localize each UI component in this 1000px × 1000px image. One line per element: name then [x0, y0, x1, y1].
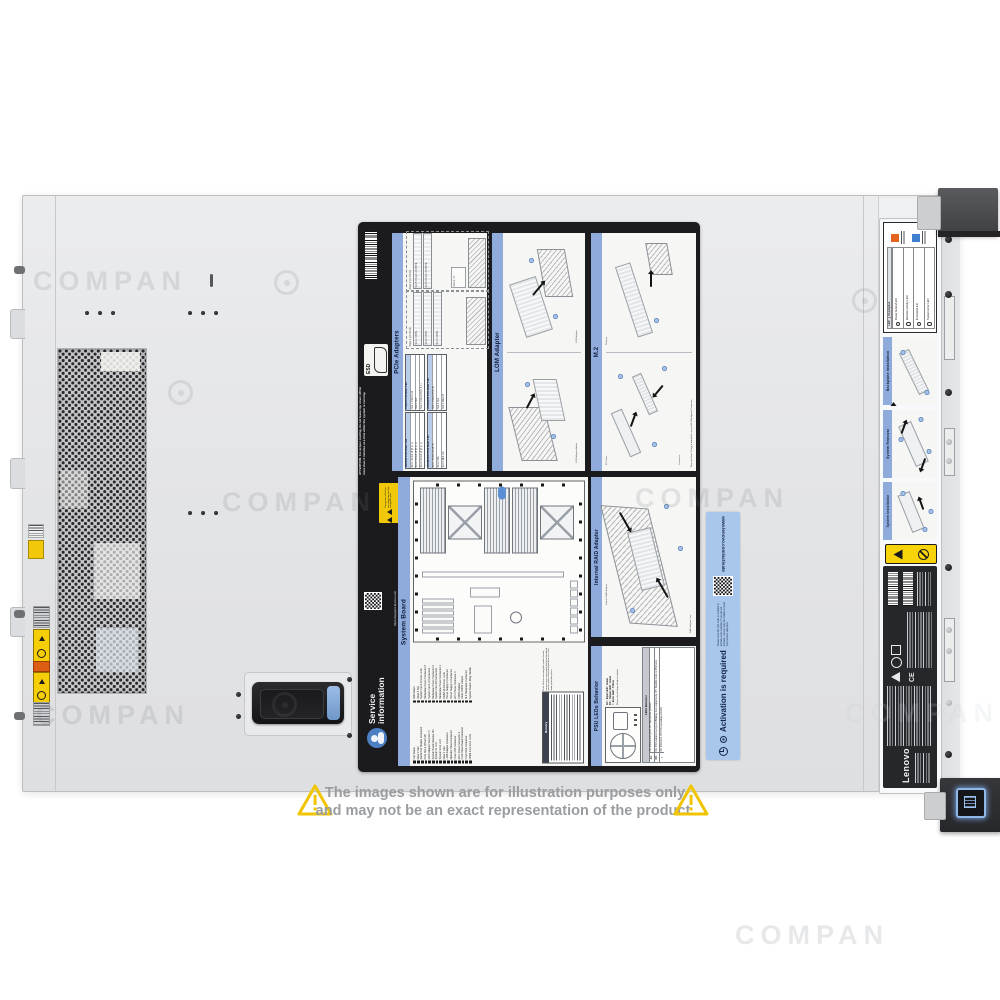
board-callout-marker [579, 538, 582, 541]
m2-drive-label: M.2 Drive [606, 456, 609, 465]
rail-screw [945, 564, 952, 571]
blue-sticker [498, 486, 506, 499]
rail-hole [946, 700, 952, 706]
list-item: Fan Status [413, 706, 416, 764]
front-led-row: Power button/LED [892, 248, 902, 328]
list-item: DIMM 13-24 Error LEDs [443, 645, 446, 703]
lom-adapter-label: LOM Adapter [576, 330, 579, 343]
rack-ear-top [938, 188, 998, 234]
rail-hole [946, 627, 952, 633]
m2-diagram-backplane: Retainer [604, 237, 682, 349]
rear-label-small-yellow-1 [28, 540, 44, 559]
support-qr-code [364, 592, 382, 610]
latch-blue-touchpoint [327, 686, 340, 720]
rivet-group-1 [85, 311, 115, 315]
legend-column-2: NMI ButtonRiser 3 SlotSystem Fan 1-6 Err… [413, 645, 539, 703]
latch-inner-recess [260, 689, 324, 719]
warning-triangle-right-icon [672, 783, 710, 817]
attention-note: ATTENTION: For proper cooling, do not le… [359, 383, 391, 475]
m2-title: M.2 [594, 347, 600, 358]
m2-diagram-install: M.2 Drive Connector [604, 355, 682, 467]
psu-led-dots [634, 714, 637, 726]
backplane-title-strip: Backplane Installation [883, 337, 892, 405]
pcie-title-strip: PCIe Adapters [392, 233, 403, 471]
raid-tray-label: RAID Adapter Tray [690, 615, 693, 633]
board-callout-marker [562, 483, 565, 486]
service-info-title: Service information [360, 648, 394, 748]
rear-label-yellow-2 [33, 672, 50, 706]
lom-airduct-label: LOM Adapter Airduct [576, 443, 579, 463]
list-item: Clear CMOS Jumper [461, 645, 464, 703]
rail-slot-2 [944, 428, 955, 476]
lom-diagram-adapter: LOM Adapter [507, 237, 581, 349]
backplane-section [892, 337, 937, 405]
board-callout-marker [415, 574, 418, 577]
cpu2-socket [540, 505, 574, 539]
activation-qr-code [713, 576, 733, 596]
rail-screw [945, 291, 952, 298]
psu-legend-items: AC : Input LED : GreenDC : Output LED : … [606, 648, 615, 705]
board-callout-marker [415, 556, 418, 559]
board-callout-marker [579, 574, 582, 577]
rivet-group-3 [188, 511, 218, 515]
system-installation-section [892, 482, 937, 540]
front-rail [939, 200, 960, 787]
psu-title: PSU LEDs Behavior [594, 681, 600, 732]
board-callout-marker [520, 483, 523, 486]
list-item: GPU Power Connector 1 [454, 645, 457, 703]
list-item: System Fan 4-6 Connectors [435, 645, 438, 703]
rear-tab-2 [10, 458, 25, 489]
cover-latch-handle [252, 682, 344, 724]
board-callout-marker [541, 483, 544, 486]
list-item: Slot 2: FH/HL [423, 293, 432, 347]
pcie-riser-table: x8/x8/x8 PCIe Riser 1 kitSlot 1: PCIe3 x… [405, 412, 425, 469]
rear-edge-seam [55, 196, 56, 791]
led-col-header: LED [888, 317, 891, 328]
riser2-label: Riser 2 (of CPU2) [409, 234, 412, 290]
riser1-diagram: Riser 1 (of CPU1) Slot 1: FH/HLSlot 2: F… [406, 290, 489, 349]
hazard-circle-icon [37, 691, 46, 700]
front-led-card: LED Description Power button/LEDNetwork … [883, 222, 937, 333]
front-led-row: System Error LED [924, 248, 934, 328]
support-url-block: https://support.lenovo.com [383, 578, 395, 626]
list-item: PCIe Slot 4 (PCIe3 x8) [424, 706, 427, 764]
board-callout-marker [478, 637, 481, 640]
board-callout-marker [520, 637, 523, 640]
service-info-line2: information [377, 677, 386, 724]
memory-table: Memory [542, 691, 584, 763]
cmos-battery [510, 611, 522, 623]
rear-tab-1 [10, 309, 25, 339]
board-callout-marker [579, 628, 582, 631]
list-item: Riser 3 Slot [417, 645, 420, 703]
hazard-circle-icon [37, 649, 46, 658]
system-removal-section [892, 410, 937, 478]
list-item: System Board Lifting Handle [469, 645, 472, 703]
board-callout-marker [415, 502, 418, 505]
rear-label-gray-2 [33, 702, 50, 726]
board-callout-marker [579, 520, 582, 523]
activation-url: www.lenovo.com/activate [721, 516, 726, 572]
esd-text: ESD [366, 364, 372, 374]
list-item: CMOS Battery [458, 645, 461, 703]
list-item: Riser 2 Slot [417, 706, 420, 764]
system-installation-title-strip: System Installation [883, 482, 892, 540]
warning-triangle-icon [387, 517, 392, 523]
cert-circle-icon [891, 657, 902, 668]
psu-fan-icon [610, 733, 636, 759]
list-item: RAID Adapter Slot (Slot 7) [428, 706, 431, 764]
system-removal-title-strip: System Removal [883, 410, 892, 478]
psu-title-strip: PSU LEDs Behavior [591, 646, 602, 766]
vent-slot-hole [210, 274, 213, 287]
power-button-glyph [964, 796, 976, 808]
front-seam-1 [863, 196, 864, 791]
board-callout-marker [478, 483, 481, 486]
lom-title-strip: LOM Adapter [492, 233, 503, 471]
raid-title: Internal RAID Adapter [594, 529, 600, 585]
board-callout-marker [457, 483, 460, 486]
memory-note: Note: Before removing the system board, … [543, 645, 554, 690]
watermark-text: COMPAN [735, 920, 889, 951]
rail-screw [945, 389, 952, 396]
list-item: DIMM 1-12 Error LEDs [469, 706, 472, 764]
riser2-slots: Slot 5: PCIe3 x16 FH/HLSlot 6: PCIe3 x16… [413, 234, 432, 290]
gear-icon [720, 736, 727, 743]
backplane-title: Backplane Installation [886, 351, 890, 391]
list-item: Slot 1: FH/HL [413, 293, 422, 347]
board-callout-marker [541, 637, 544, 640]
system-board-title-strip: System Board [398, 477, 410, 766]
rear-pin-2 [14, 610, 25, 618]
rear-label-small-white-1 [28, 524, 44, 538]
rail-slot-1 [944, 296, 955, 360]
list-item: Front VGA Connector [465, 706, 468, 764]
board-callout-marker [415, 628, 418, 631]
pcie-riser-table: x8 ML2/x8 PCIe Riser 1 kitSlot 1: PCIe3 … [427, 354, 447, 411]
attention-text: ATTENTION: For proper cooling, do not le… [359, 383, 367, 475]
board-callout-marker [415, 610, 418, 613]
orange-led-square [891, 234, 899, 242]
vent-label-patch-3 [96, 628, 138, 672]
front-led-table: LED Description Power button/LEDNetwork … [887, 247, 935, 329]
rail-hole [946, 648, 952, 654]
list-item: ! : Error LED : Yellow [612, 648, 615, 705]
list-item: System Fan 1-3 Connectors [428, 645, 431, 703]
led-glyph-icon [906, 321, 911, 326]
list-item: System Board Release Pin [432, 706, 435, 764]
led-glyph-icon [917, 321, 922, 326]
warning-triangle-icon [39, 636, 45, 641]
board-callout-marker [457, 637, 460, 640]
m2-connector-label: Connector [679, 455, 682, 465]
latch-screw [236, 714, 241, 719]
system-board-legend: Fan StatusRiser 2 SlotSerial Port Module… [413, 645, 539, 763]
front-led-row: ID button/LED [913, 248, 923, 328]
list-item: System Error LED [439, 706, 442, 764]
rear-label-gray-1 [33, 606, 50, 628]
certification-label: Lenovo CE [883, 566, 937, 788]
cert-barcode-1 [888, 572, 898, 606]
pcie-panel: x8/x8/x8 PCIe Riser 1 kitSlot 1: PCIe3 x… [403, 233, 487, 471]
m2-title-strip: M.2 [591, 233, 602, 471]
slot4-box: Slot 4: LP [451, 267, 466, 288]
m2-retainer-label: Retainer [606, 337, 609, 345]
label-barcode [365, 231, 377, 279]
rear-label-orange [33, 661, 50, 672]
riser2-diagram: Riser 2 (of CPU2) Slot 5: PCIe3 x16 FH/H… [406, 231, 489, 292]
list-item: Serial Port Module Connector [420, 706, 423, 764]
board-callout-marker [499, 637, 502, 640]
psu-behavior-table: LEDs Behavior ACOn: Input power good. Of… [642, 647, 695, 763]
recycle-triangle-icon [891, 672, 900, 682]
rail-hole [946, 458, 952, 464]
list-item: Operator Panel Connector [450, 706, 453, 764]
support-url: https://support.lenovo.com [393, 591, 397, 626]
rear-pin-1 [14, 266, 25, 274]
disclaimer-line1: The images shown are for illustration pu… [280, 785, 730, 803]
cpu1-socket [448, 505, 482, 539]
esd-label: ESD [364, 344, 388, 376]
margin-warning-label: Turn power off before removing any non-h… [379, 483, 399, 523]
list-item: Power Supply 2 Connector [446, 645, 449, 703]
rail-hole [946, 439, 952, 445]
rack-ear-top-latch [917, 196, 941, 230]
power-button [956, 788, 986, 818]
board-callout-marker [415, 520, 418, 523]
system-installation-title: System Installation [886, 495, 890, 528]
cert-barcode-2 [903, 572, 913, 606]
activation-label: Activation is required Please scan the Q… [706, 512, 740, 760]
esd-cord-icon [374, 347, 387, 373]
raid-adapter-label: Internal RAID Adapter [606, 584, 609, 605]
front-lift-warning-label [885, 544, 937, 564]
psu-behavior-row: ACOn: Input power good. Off: Input power… [649, 648, 654, 762]
raid-panel: Internal RAID Adapter RAID Adapter Tray [602, 477, 696, 637]
psu-panel: AC : Input LED : GreenDC : Output LED : … [602, 646, 696, 766]
board-callout-marker [415, 592, 418, 595]
rail-screw [945, 751, 952, 758]
list-item: M.2 Backplane Connector [465, 645, 468, 703]
lom-title: LOM Adapter [495, 332, 501, 372]
rear-label-yellow-1 [33, 629, 50, 665]
warning-triangle-icon [894, 549, 903, 559]
board-diagram [413, 480, 585, 642]
board-callout-marker [436, 637, 439, 640]
warning-triangle-icon [39, 679, 45, 684]
riser1-slots: Slot 1: FH/HLSlot 2: FH/HLSlot 3: FH/HL [413, 293, 443, 347]
clock-icon [719, 747, 728, 756]
raid-title-strip: Internal RAID Adapter [591, 477, 602, 637]
list-item: Power Supply 1 Connector [450, 645, 453, 703]
list-item: System Fan 1-6 Error LEDs [420, 645, 423, 703]
riser1-label: Riser 1 (of CPU1) [409, 293, 412, 347]
m2-note: Remove Riser 3 Cage if installed to acce… [691, 359, 694, 467]
m2-panel: M.2 Drive Connector Retainer Remove Rise… [602, 233, 696, 471]
board-callout-marker [579, 502, 582, 505]
product-photo-lenovo-server-top-view: ESD ATTENTION: For proper cooling, do no… [0, 0, 1000, 1000]
board-callout-marker [415, 538, 418, 541]
list-item: Slot 3: FH/HL [433, 293, 442, 347]
board-callout-marker [436, 483, 439, 486]
list-item: System ID LED [435, 706, 438, 764]
list-item: GPU Power Connector 2 [458, 706, 461, 764]
rear-pin-3 [14, 712, 25, 720]
rack-ear-bottom-latch [924, 792, 946, 820]
vent-label-patch-2 [94, 543, 140, 599]
system-removal-title: System Removal [886, 429, 890, 459]
board-callout-marker [562, 637, 565, 640]
legend-column-1: Fan StatusRiser 2 SlotSerial Port Module… [413, 706, 539, 764]
psu-behavior-row: DCOn: PSU output power good. Blinking: Z… [654, 648, 659, 762]
pcie-riser-table: x16/x8 PCIe Riser 1 kitSlot 1: PCIe3 x16… [405, 354, 425, 411]
led-glyph-icon [896, 321, 901, 326]
warning-triangle-icon [387, 510, 392, 516]
rail-screw [945, 236, 952, 243]
front-led-row: Network activity LED [903, 248, 913, 328]
margin-warning-text: Turn power off before removing any non-h… [385, 483, 393, 508]
desc-col-header: Description [888, 248, 891, 317]
psu-note: Please check Setup Guide for details [617, 648, 620, 705]
list-item: Riser 1 Slot [443, 706, 446, 764]
led-glyph-icon [927, 321, 932, 326]
ce-mark: CE [909, 672, 916, 682]
blue-led-square [912, 234, 920, 242]
list-item: Slot 6: PCIe3 x16 FH/HL [423, 234, 432, 290]
lom-diagram-airduct: LOM Adapter Airduct [507, 357, 581, 467]
list-item: Backplane Power Connector 3 [424, 645, 427, 703]
activation-title: Activation is required [719, 650, 728, 732]
vent-label-patch-4 [60, 470, 88, 508]
front-led-colors [888, 228, 932, 246]
psu-ac-inlet [613, 712, 628, 730]
latch-screw [347, 733, 352, 738]
rack-ear-top-lip [938, 231, 1000, 237]
raid-diagram: Internal RAID Adapter RAID Adapter Tray [604, 479, 694, 635]
memory-table-title: Memory [543, 692, 549, 762]
latch-screw [347, 677, 352, 682]
disclaimer-text: The images shown are for illustration pu… [280, 785, 730, 821]
lom-panel: LOM Adapter Airduct LOM Adapter [503, 233, 585, 471]
pcie-title: PCIe Adapters [394, 330, 401, 373]
psu-behavior-row: !On: PSU error. Off: PSU operating corre… [659, 648, 664, 762]
list-item: Slot 5: PCIe3 x16 FH/HL [413, 234, 422, 290]
board-callout-marker [579, 610, 582, 613]
system-board-title: System Board [401, 598, 408, 644]
list-item: Front Panel Board Connector [461, 706, 464, 764]
service-label: ESD ATTENTION: For proper cooling, do no… [358, 222, 700, 772]
service-info-icon [367, 728, 387, 748]
list-item: Backplane Power Connector 1 [439, 645, 442, 703]
two-person-lift-icon [918, 549, 929, 560]
disclaimer-line2: and may not be an exact representation o… [280, 803, 730, 821]
pcie-riser-tables: x8/x8/x8 PCIe Riser 1 kitSlot 1: PCIe3 x… [404, 352, 486, 470]
latch-screw [236, 692, 241, 697]
psu-drawing [605, 707, 641, 763]
vent-label-patch-1 [101, 352, 140, 371]
cert-square-icon [891, 645, 901, 655]
list-item: Front USB Connector [454, 706, 457, 764]
board-callout-marker [579, 592, 582, 595]
list-item: NMI Button [413, 645, 416, 703]
board-callout-marker [499, 483, 502, 486]
pcie-riser-table: x16 ML2/x8 PCIe Riser 1 kitSlot 1: PCIe3… [427, 412, 447, 469]
system-board-panel: Fan StatusRiser 2 SlotSerial Port Module… [410, 477, 588, 766]
psu-led-legend: AC : Input LED : GreenDC : Output LED : … [606, 648, 640, 705]
rivet-group-2 [188, 311, 218, 315]
list-item: LOM Adapter Connector [446, 706, 449, 764]
list-item: Backplane Power Connector 2 [432, 645, 435, 703]
board-callout-marker [579, 556, 582, 559]
activation-body: Please scan the QR code or website to ac… [717, 600, 730, 646]
lenovo-logo: Lenovo [901, 748, 911, 783]
